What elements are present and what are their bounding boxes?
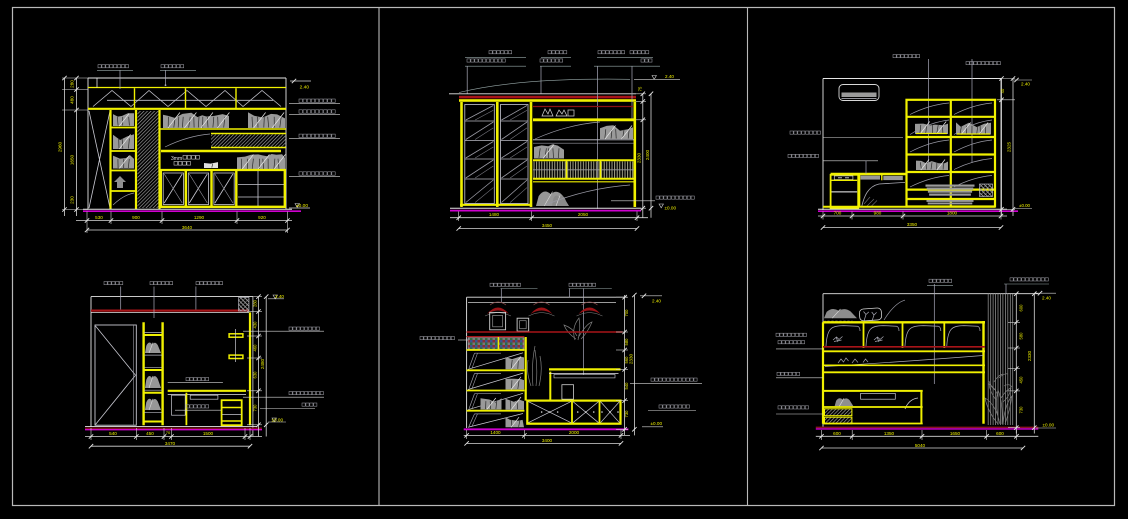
svg-text:1480: 1480	[489, 212, 500, 217]
svg-text:1800: 1800	[947, 211, 958, 216]
svg-text:3470: 3470	[165, 441, 176, 446]
svg-text:70: 70	[166, 430, 171, 435]
svg-text:2330: 2330	[1027, 350, 1032, 361]
svg-text:280: 280	[70, 80, 75, 88]
svg-text:920: 920	[258, 215, 266, 220]
svg-text:2000: 2000	[569, 430, 580, 435]
svg-text:630: 630	[252, 371, 257, 379]
svg-text:2.40: 2.40	[275, 294, 284, 299]
svg-text:1350: 1350	[884, 431, 895, 436]
svg-text:1500: 1500	[203, 431, 214, 436]
svg-text:1650: 1650	[70, 154, 75, 165]
svg-text:3mm: 3mm	[171, 156, 182, 162]
svg-text:700: 700	[834, 211, 842, 216]
svg-text:600: 600	[833, 431, 841, 436]
svg-text:730: 730	[624, 410, 629, 418]
svg-text:40: 40	[1000, 88, 1005, 93]
svg-text:1650: 1650	[950, 431, 961, 436]
svg-text:2.40: 2.40	[1042, 296, 1051, 301]
svg-text:1290: 1290	[194, 215, 205, 220]
svg-text:3350: 3350	[907, 222, 918, 227]
svg-text:3400: 3400	[542, 438, 553, 443]
svg-text:3640: 3640	[182, 225, 193, 230]
svg-text:±0.00: ±0.00	[1019, 203, 1031, 208]
svg-text:540: 540	[624, 382, 629, 390]
svg-text:2.40: 2.40	[1021, 82, 1030, 87]
svg-text:2330: 2330	[637, 152, 642, 163]
svg-text:2330: 2330	[629, 353, 634, 364]
svg-text:540: 540	[109, 431, 117, 436]
svg-text:700: 700	[624, 309, 629, 317]
svg-text:2050: 2050	[578, 212, 589, 217]
svg-text:980: 980	[874, 211, 882, 216]
svg-text:730: 730	[1019, 406, 1024, 414]
svg-text:580: 580	[1019, 332, 1024, 340]
svg-text:450: 450	[146, 431, 154, 436]
svg-text:480: 480	[70, 96, 75, 104]
svg-text:±0.00: ±0.00	[296, 203, 308, 209]
svg-text:230: 230	[70, 196, 75, 204]
svg-text:±0.00: ±0.00	[272, 418, 284, 423]
svg-text:600: 600	[996, 431, 1004, 436]
svg-text:280: 280	[252, 299, 257, 307]
svg-text:600: 600	[1019, 304, 1024, 312]
svg-text:±0.00: ±0.00	[1043, 422, 1055, 427]
svg-text:5040: 5040	[915, 443, 926, 448]
svg-text:2.40: 2.40	[300, 84, 310, 90]
svg-text:2480: 2480	[260, 358, 265, 369]
svg-text:2.40: 2.40	[652, 298, 661, 303]
svg-text:2400: 2400	[645, 149, 650, 160]
svg-text:±0.00: ±0.00	[651, 421, 663, 426]
svg-text:±0.00: ±0.00	[665, 206, 677, 211]
svg-text:75: 75	[638, 86, 643, 91]
svg-text:3450: 3450	[542, 223, 553, 228]
svg-text:1400: 1400	[490, 430, 501, 435]
svg-text:450: 450	[1019, 376, 1024, 384]
svg-text:530: 530	[95, 215, 103, 220]
svg-text:900: 900	[132, 215, 140, 220]
svg-text:2.40: 2.40	[665, 74, 674, 79]
svg-text:580: 580	[624, 338, 629, 346]
svg-text:730: 730	[252, 404, 257, 412]
svg-text:2960: 2960	[58, 141, 63, 152]
svg-text:2325: 2325	[1007, 141, 1012, 152]
svg-text:430: 430	[252, 321, 257, 329]
svg-text:460: 460	[252, 344, 257, 352]
